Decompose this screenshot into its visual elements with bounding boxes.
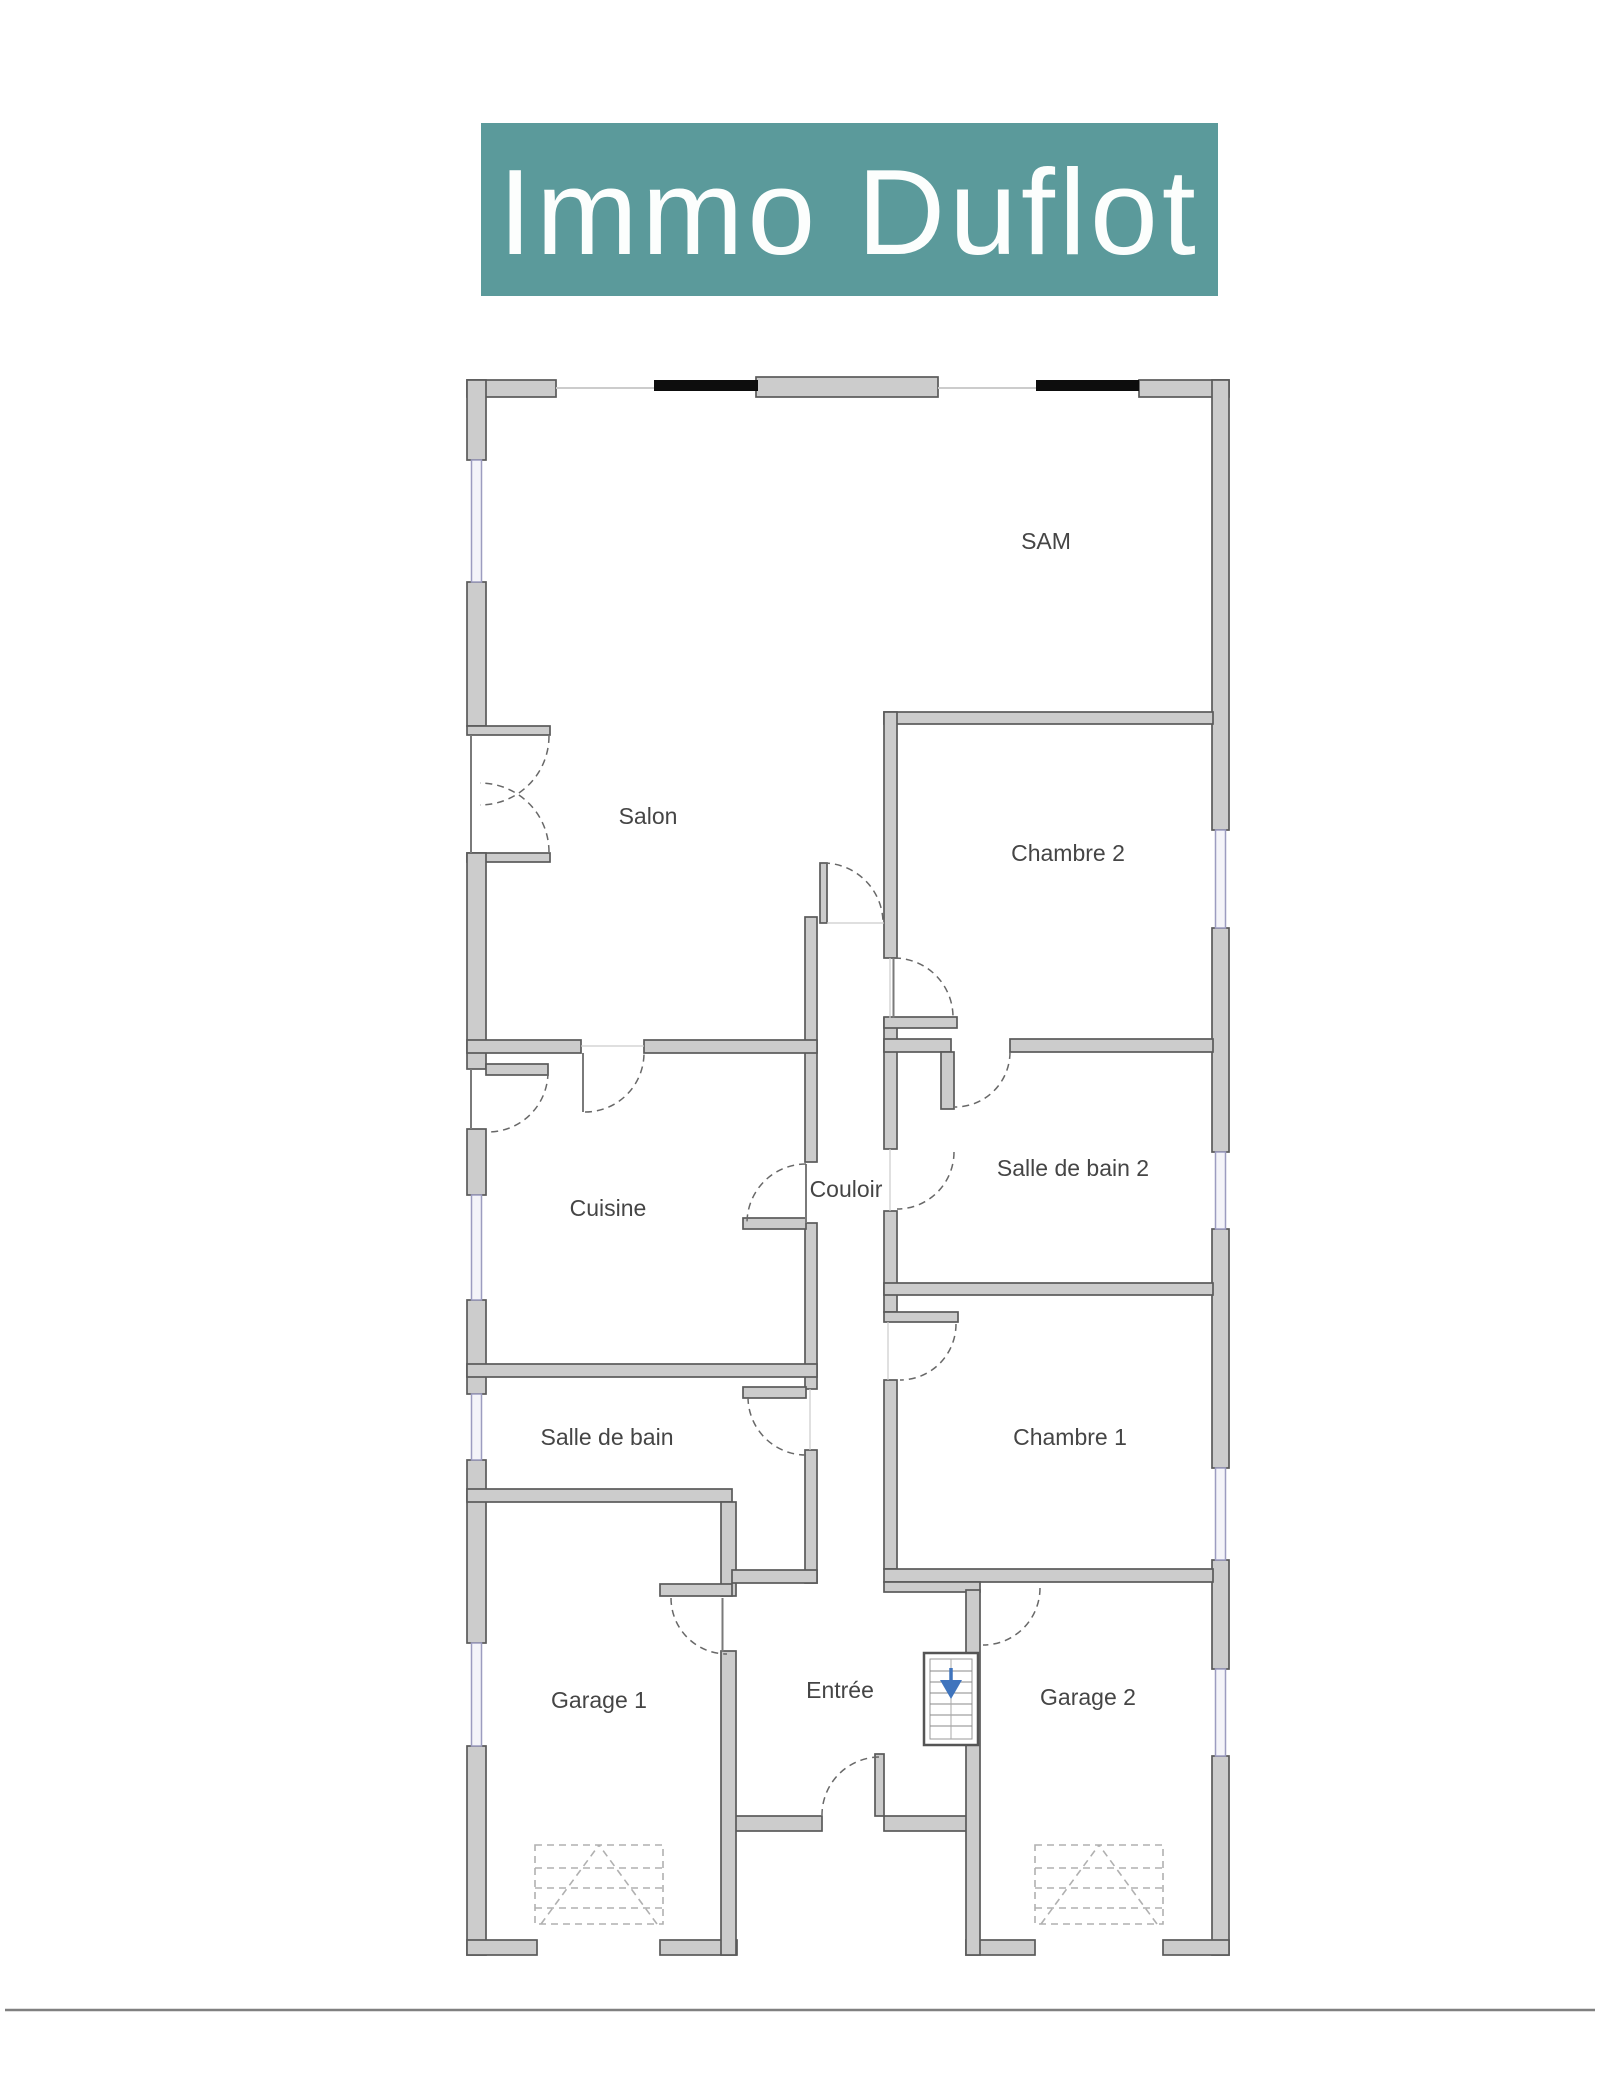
svg-text:Couloir: Couloir	[810, 1176, 883, 1202]
svg-text:Garage 1: Garage 1	[551, 1687, 647, 1713]
svg-text:Salon: Salon	[619, 803, 678, 829]
svg-text:Cuisine: Cuisine	[570, 1195, 647, 1221]
svg-text:Chambre 2: Chambre 2	[1011, 840, 1125, 866]
svg-text:SAM: SAM	[1021, 528, 1071, 554]
svg-text:Salle de bain: Salle de bain	[541, 1424, 674, 1450]
svg-text:Entrée: Entrée	[806, 1677, 874, 1703]
svg-text:Garage 2: Garage 2	[1040, 1684, 1136, 1710]
svg-text:Salle de bain 2: Salle de bain 2	[997, 1155, 1149, 1181]
svg-text:Chambre 1: Chambre 1	[1013, 1424, 1127, 1450]
svg-text:Immo Duflot: Immo Duflot	[498, 144, 1200, 280]
